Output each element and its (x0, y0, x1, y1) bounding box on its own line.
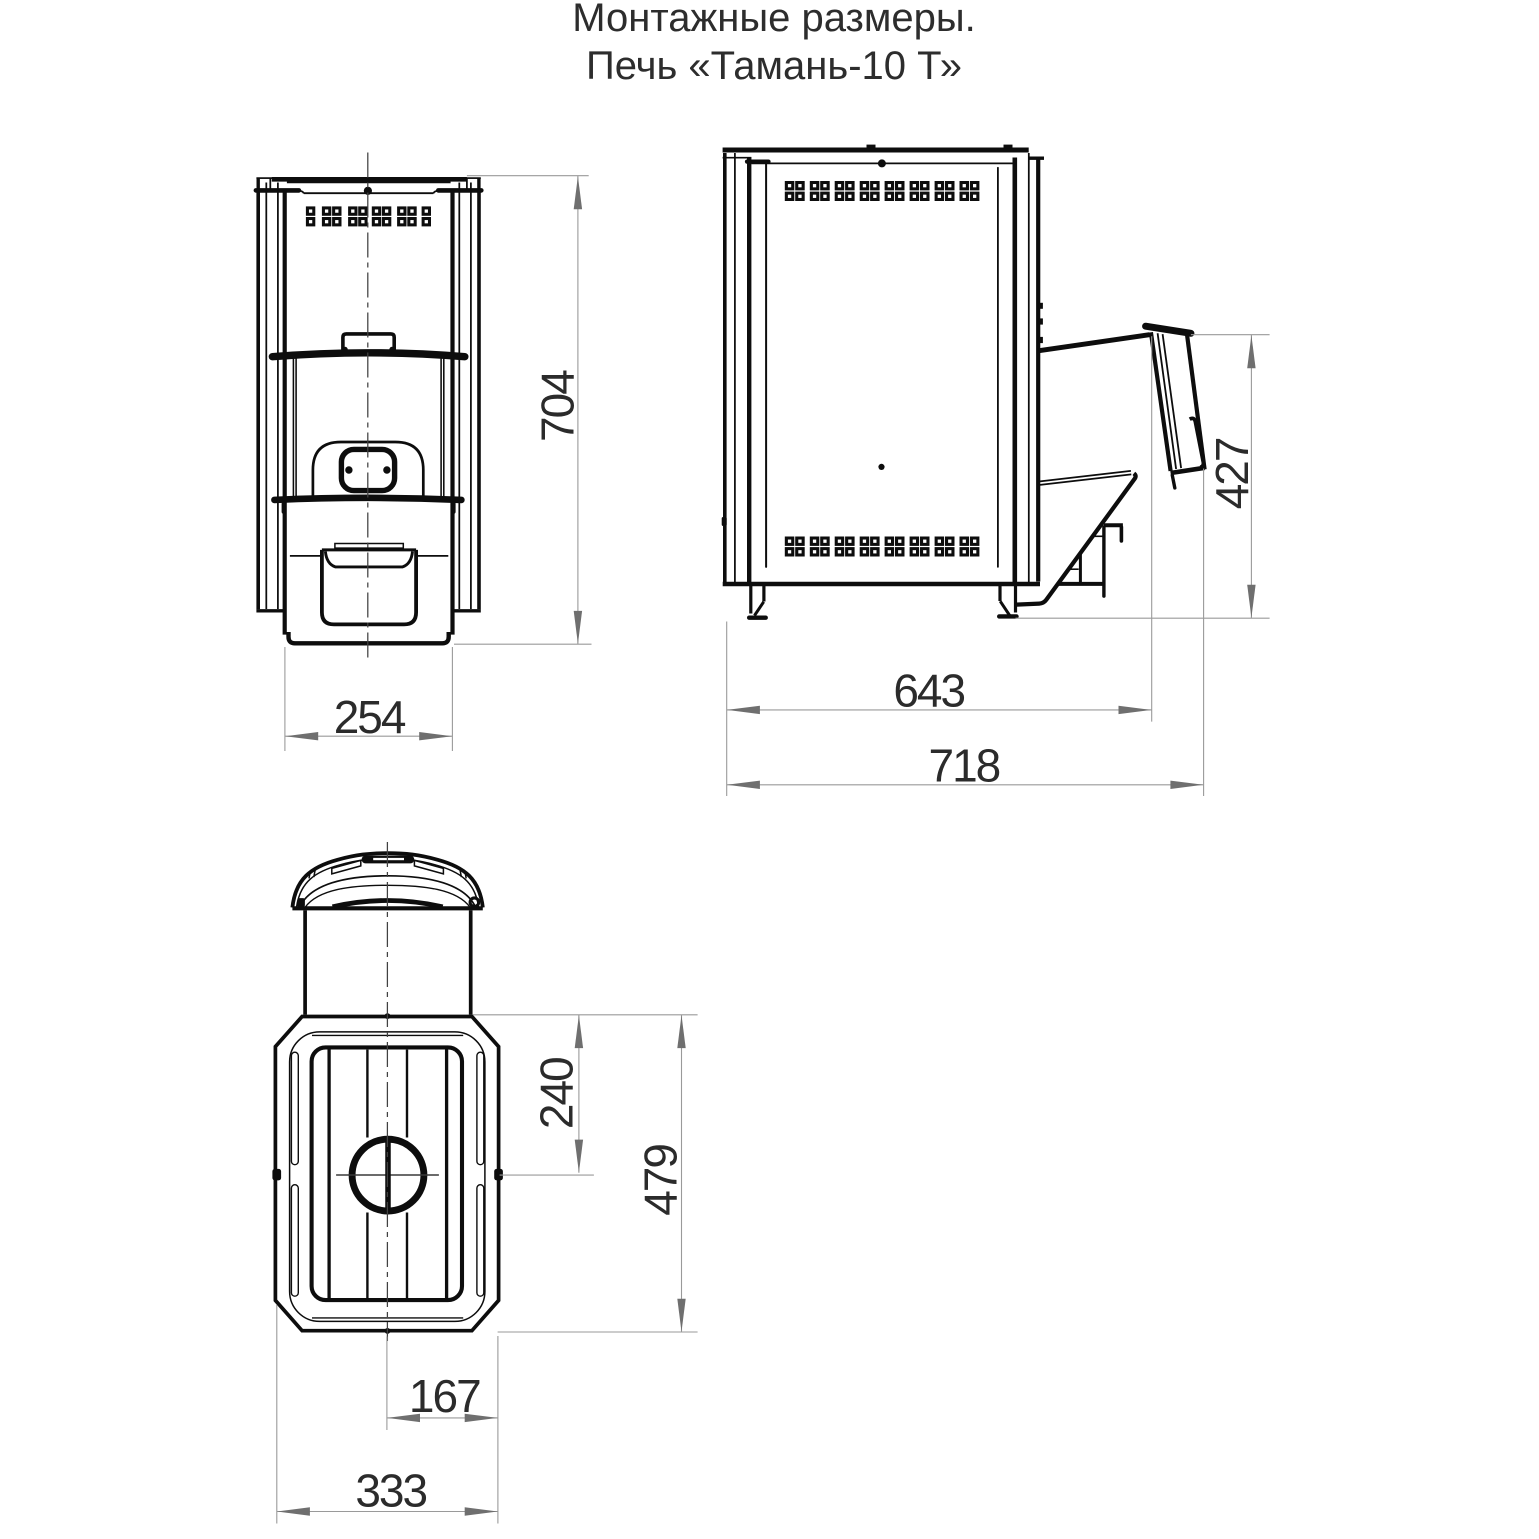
svg-text:240: 240 (531, 1058, 583, 1129)
svg-text:427: 427 (1206, 438, 1258, 509)
svg-text:167: 167 (409, 1370, 480, 1422)
svg-text:Печь «Тамань-10 Т»: Печь «Тамань-10 Т» (586, 44, 962, 88)
svg-text:479: 479 (634, 1145, 686, 1216)
svg-text:718: 718 (929, 740, 1000, 792)
svg-text:704: 704 (532, 370, 584, 442)
svg-text:643: 643 (893, 664, 964, 716)
svg-text:254: 254 (334, 691, 406, 743)
svg-text:Монтажные размеры.: Монтажные размеры. (572, 0, 975, 40)
svg-text:333: 333 (355, 1464, 426, 1516)
